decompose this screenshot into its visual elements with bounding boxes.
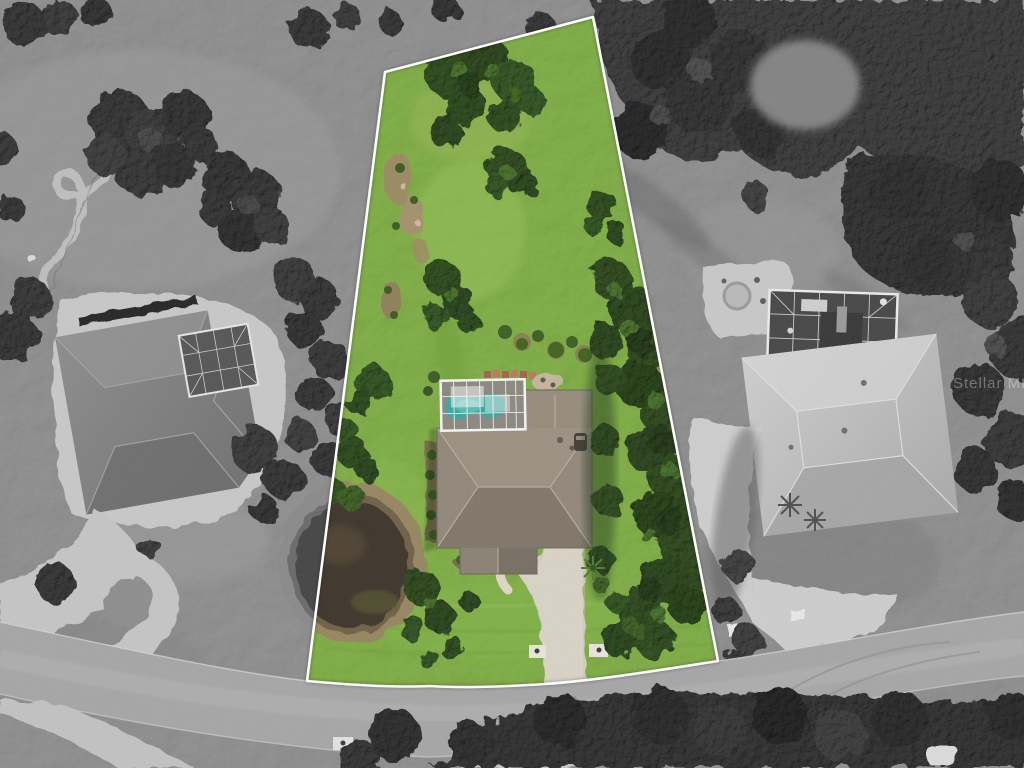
photo-noise-overlay bbox=[0, 0, 1024, 768]
aerial-photo: Stellar MLS bbox=[0, 0, 1024, 768]
watermark-text: Stellar MLS bbox=[953, 375, 1024, 392]
aerial-photo-canvas: Stellar MLS bbox=[0, 0, 1024, 768]
